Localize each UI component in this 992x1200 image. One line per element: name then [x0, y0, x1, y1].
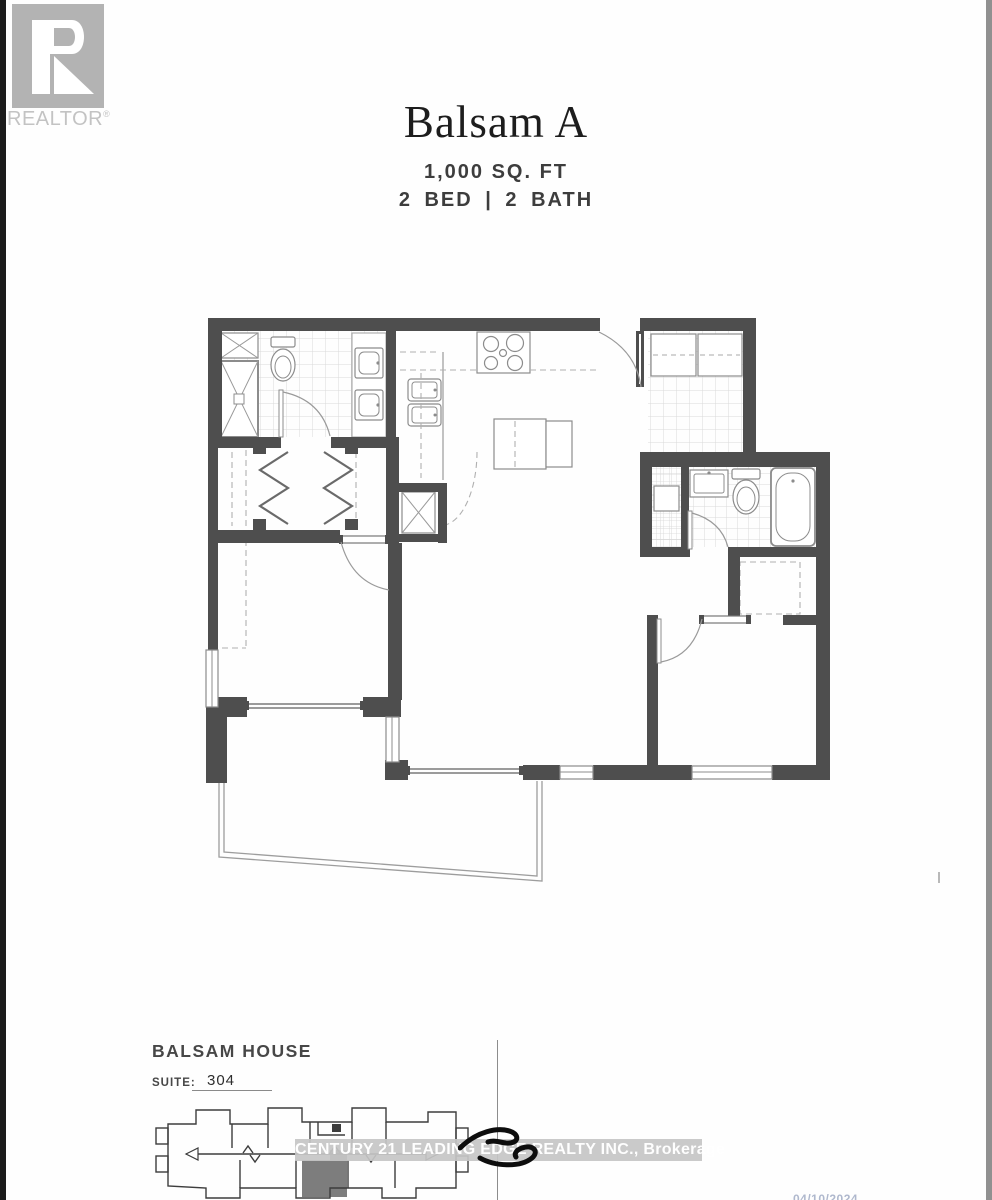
suite-label: SUITE: [152, 1077, 196, 1089]
pantry-closet [402, 492, 435, 533]
plan-area-text: 1,000 SQ. FT [0, 161, 992, 184]
bath2-door-leaf [688, 511, 692, 549]
toilet-2-icon [732, 469, 760, 514]
registered-mark: ® [103, 109, 110, 119]
plan-bed-bath-text: 2 BED | 2 BATH [0, 189, 992, 212]
plan-header: Balsam A 1,000 SQ. FT 2 BED | 2 BATH [0, 96, 992, 212]
left-edge-border [0, 0, 6, 1200]
right-edge-border [986, 0, 992, 1200]
kitchen [402, 332, 572, 533]
swoosh-logo-icon [458, 1124, 548, 1172]
kitchen-island-icon [494, 419, 572, 469]
linen-shelf-icon [221, 333, 258, 358]
bed1-door-leaf [341, 536, 387, 543]
realtor-logo-text: REALTOR® [7, 108, 137, 131]
shower-1-icon [221, 361, 258, 437]
bathtub-icon [771, 468, 815, 546]
date-stamp: 04/10/2024 [793, 1192, 858, 1200]
sink-2-icon [690, 470, 728, 497]
kitchen-sink-icon [408, 379, 441, 426]
shower-2-shelf-icon [654, 486, 679, 511]
floorplan-page: REALTOR® Balsam A 1,000 SQ. FT 2 BED | 2… [0, 0, 992, 1200]
stove-icon [477, 332, 530, 373]
entry-closet [651, 334, 742, 376]
balcony-outline [219, 781, 542, 881]
scan-artifact [938, 872, 940, 883]
bifold-closet-doors [260, 452, 352, 524]
bed2-door-leaf [657, 619, 661, 663]
building-name: BALSAM HOUSE [152, 1041, 312, 1062]
bed2-wall-panel [700, 616, 750, 623]
page-title: Balsam A [0, 96, 992, 148]
floor-plan-drawing [195, 305, 850, 905]
bath1-door-leaf [279, 390, 283, 437]
double-vanity-icon [352, 333, 386, 437]
realtor-logo: REALTOR® [6, 0, 136, 112]
suite-underline [192, 1090, 272, 1091]
realtor-r-icon [6, 0, 116, 112]
suite-row: SUITE: 304 [152, 1072, 312, 1094]
suite-number: 304 [207, 1072, 235, 1089]
toilet-1-icon [271, 337, 295, 381]
footer-divider-line [497, 1040, 498, 1200]
windows [206, 650, 772, 779]
